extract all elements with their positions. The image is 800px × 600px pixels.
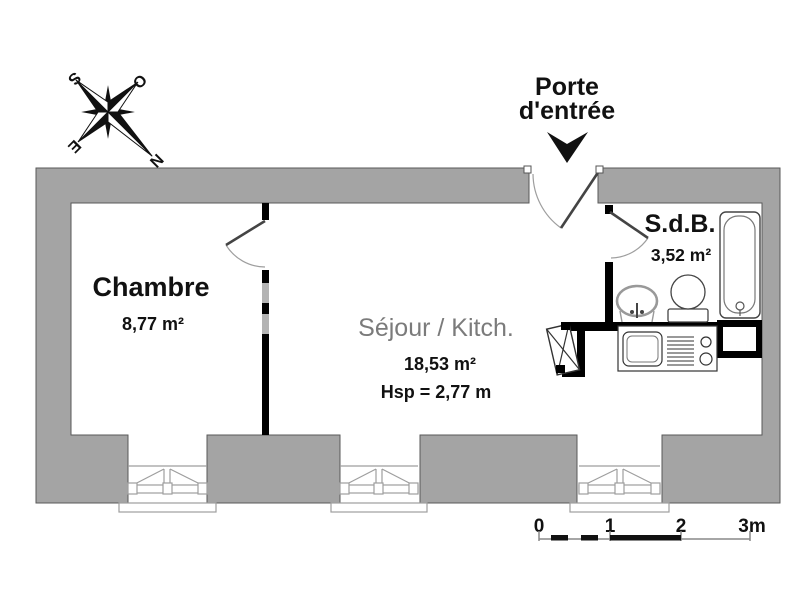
room-area-chambre: 8,77 m²: [122, 314, 184, 334]
ceiling-height-sejour: Hsp = 2,77 m: [381, 382, 492, 402]
wall-bottom-pier-2: [420, 435, 577, 503]
floor-plan-page: N S E O Porte d'entrée: [0, 0, 800, 600]
kitchen-sink-icon: [623, 332, 662, 366]
partition-jamb: [262, 203, 269, 220]
room-area-sejour: 18,53 m²: [404, 354, 476, 374]
wall-bottom-pier-1: [207, 435, 340, 503]
room-label-chambre: Chambre: [92, 272, 209, 302]
scale-tick-3-label: 3m: [738, 516, 765, 537]
toilet-icon: [668, 275, 708, 322]
entrance-label-line2: d'entrée: [519, 97, 615, 125]
floor-plan-canvas: N S E O Porte d'entrée: [0, 0, 800, 600]
kitchen-unit: [618, 326, 717, 371]
room-label-sejour: Séjour / Kitch.: [358, 314, 514, 342]
bathtub-icon: [720, 212, 760, 318]
room-label-sdb: S.d.B.: [645, 210, 716, 238]
room-area-sdb: 3,52 m²: [651, 245, 711, 265]
